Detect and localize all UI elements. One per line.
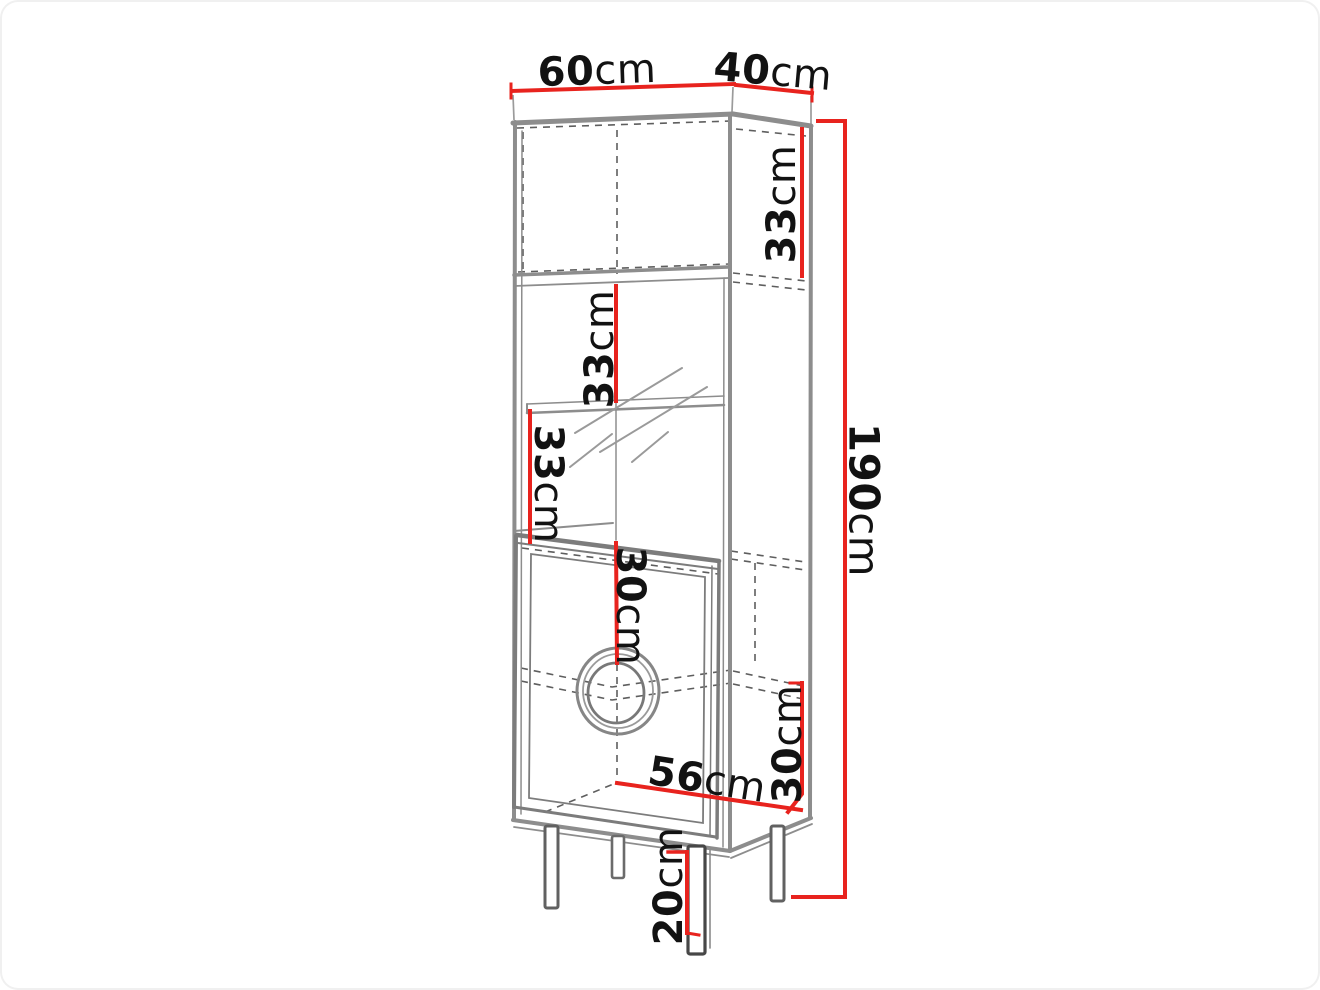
top-door-dashed-side xyxy=(736,129,806,136)
dim-value: 190 xyxy=(840,423,889,512)
dim-label-leg-height: 20cm xyxy=(646,827,692,946)
glass-shelf-front-edge xyxy=(527,405,724,413)
left-edge-inner xyxy=(521,131,522,814)
dim-value: 33 xyxy=(525,425,571,482)
dim-value: 33 xyxy=(577,352,623,409)
furniture-dimension-diagram: 60cm 40cm 33cm 190cm 33cm 33cm 30cm 56cm… xyxy=(0,0,1320,990)
dim-label-upper-shelf: 33cm xyxy=(577,290,623,409)
dim-value: 33 xyxy=(759,207,805,264)
dim-value: 30 xyxy=(607,547,653,604)
dim-unit: cm xyxy=(594,46,658,94)
dim-label-door-lower: 30cm xyxy=(765,685,811,804)
dim-value: 60 xyxy=(537,48,595,96)
dim-unit: cm xyxy=(759,145,805,207)
top-section-bottom-inner xyxy=(514,278,728,286)
leg-back-right xyxy=(771,826,784,901)
leg-back-left xyxy=(612,836,624,878)
door-left-edge xyxy=(514,536,516,807)
top-divider-dashed-right2 xyxy=(733,282,806,290)
dim-unit: cm xyxy=(840,512,889,577)
dim-value: 40 xyxy=(712,44,772,95)
interior-shelf-front xyxy=(521,668,731,687)
leg-front-left xyxy=(545,826,558,908)
interior-top-right2 xyxy=(731,559,805,570)
dim-value: 56 xyxy=(645,748,708,802)
top-side-edge xyxy=(733,114,811,126)
dim-unit: cm xyxy=(607,603,653,665)
dim-label-width: 60cm xyxy=(537,46,657,96)
dim-value: 20 xyxy=(646,889,692,946)
dim-unit: cm xyxy=(765,685,811,747)
dim-unit: cm xyxy=(525,481,571,543)
dim-label-lower-shelf: 33cm xyxy=(525,425,571,544)
dim-label-door-upper: 30cm xyxy=(607,547,653,666)
interior-bottom-diagonal xyxy=(545,783,616,812)
interior-top-right1 xyxy=(731,551,805,562)
interior-shelf-back xyxy=(521,681,731,700)
handle-ring-inner xyxy=(588,663,644,723)
dim-label-top-compartment: 33cm xyxy=(759,145,805,264)
dim-label-total-height: 190cm xyxy=(840,423,889,577)
top-divider-dashed-right1 xyxy=(733,273,806,281)
glass-shine-mark xyxy=(570,434,612,467)
dim-unit: cm xyxy=(577,290,623,352)
dim-unit: cm xyxy=(646,827,692,889)
dim-unit: cm xyxy=(701,757,769,812)
dim-unit: cm xyxy=(768,49,834,100)
glass-shine-mark xyxy=(632,432,668,462)
dim-value: 30 xyxy=(765,747,811,804)
